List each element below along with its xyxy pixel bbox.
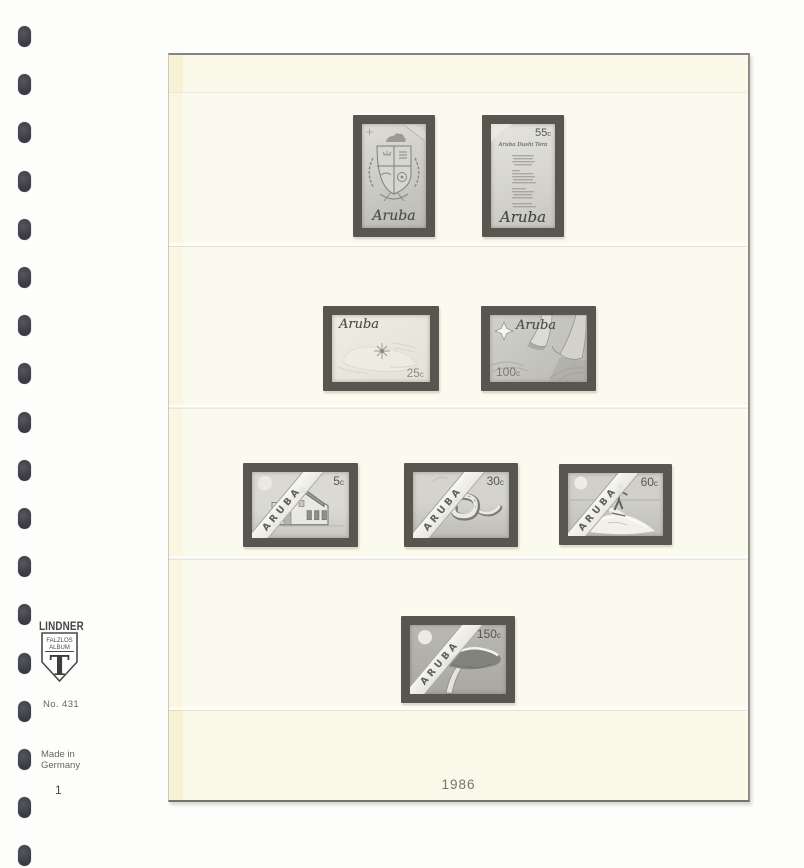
stamp-value-unit: c (547, 129, 551, 138)
binder-hole (18, 412, 31, 433)
page-number: 1 (55, 783, 62, 797)
binder-hole (18, 171, 31, 192)
stamp-mount: Aruba (353, 115, 435, 237)
stamp-country-script: Aruba (362, 208, 426, 224)
binder-hole (18, 26, 31, 47)
stamp-coat-of-arms: Aruba (362, 124, 426, 228)
binder-hole (18, 797, 31, 818)
binder-hole (18, 845, 31, 866)
stamp-value-amount: 5 (333, 474, 340, 488)
svg-text:FALZLOS: FALZLOS (46, 638, 72, 644)
stamp-value-amount: 60 (641, 475, 654, 489)
binder-hole (18, 508, 31, 529)
binder-hole (18, 315, 31, 336)
mounting-strip-row-1 (169, 92, 748, 246)
stamp-mount: ARUBA 30c (404, 463, 518, 547)
stamp-value-amount: 150 (477, 627, 497, 641)
binder-hole (18, 604, 31, 625)
binder-hole (18, 219, 31, 240)
lindner-brand-text: LINDNER (39, 619, 84, 633)
stamp-value: 55c (535, 128, 551, 139)
stamp-value: 150c (477, 628, 501, 640)
stamp-value-amount: 30 (487, 474, 500, 488)
stamp-value-unit: c (340, 478, 344, 487)
stamp-snake-30c: ARUBA 30c (413, 472, 509, 538)
binder-hole (18, 653, 31, 674)
mounting-strip-row-2 (169, 246, 748, 408)
binder-hole (18, 749, 31, 770)
binder-hole (18, 74, 31, 95)
stamp-value-unit: c (500, 478, 504, 487)
stamp-star-ribbons-100c: Aruba 100c (490, 315, 587, 382)
stamp-mount: ARUBA 5c (243, 463, 358, 547)
binder-hole (18, 556, 31, 577)
svg-text:T: T (49, 651, 69, 682)
binder-hole (18, 460, 31, 481)
stamp-value-amount: 55 (535, 127, 547, 139)
album-page: Aruba (168, 53, 750, 802)
stamp-mount: Aruba 25c (323, 306, 439, 391)
stamp-tree-150c: ARUBA 150c (410, 625, 506, 694)
stamp-country-script: Aruba (339, 317, 379, 332)
stamp-country-script: Aruba (516, 318, 556, 333)
photo-of-album-page: LINDNER FALZLOS ALBUM T No. 431 Made in … (0, 0, 804, 868)
stamp-anthem-55c: Aruba Dushi Tera 55c Aruba (491, 124, 555, 228)
stamp-value-unit: c (420, 370, 424, 379)
stamp-value: 60c (641, 476, 658, 488)
stamp-country-script: Aruba (491, 208, 555, 226)
stamp-map-25c: Aruba 25c (332, 315, 430, 382)
stamp-value: 25c (407, 367, 424, 379)
binder-hole (18, 701, 31, 722)
stamp-value-unit: c (516, 369, 520, 378)
lindner-shield-logo: FALZLOS ALBUM T (41, 632, 78, 682)
stamp-value-amount: 100 (496, 365, 516, 379)
album-model-number: No. 431 (43, 699, 79, 710)
stamp-value-amount: 25 (407, 366, 420, 380)
stamp-mount: Aruba 100c (481, 306, 596, 391)
stamp-value-unit: c (497, 631, 501, 640)
binder-hole (18, 267, 31, 288)
stamp-value: 100c (496, 366, 520, 378)
stamp-value-unit: c (654, 479, 658, 488)
stamp-value: 30c (487, 475, 504, 487)
stamp-water-skier-60c: ARUBA 60c (568, 473, 663, 536)
binder-hole (18, 363, 31, 384)
made-in-germany-label: Made in Germany (41, 749, 80, 771)
binder-hole (18, 122, 31, 143)
stamp-mount: Aruba Dushi Tera 55c Aruba (482, 115, 564, 237)
stamp-value: 5c (333, 475, 344, 487)
year-caption: 1986 (169, 777, 748, 792)
stamp-mount: ARUBA 150c (401, 616, 515, 703)
stamp-mount: ARUBA 60c (559, 464, 672, 545)
stamp-house-5c: ARUBA 5c (252, 472, 349, 538)
stamp-title-script: Aruba Dushi Tera (491, 142, 555, 148)
